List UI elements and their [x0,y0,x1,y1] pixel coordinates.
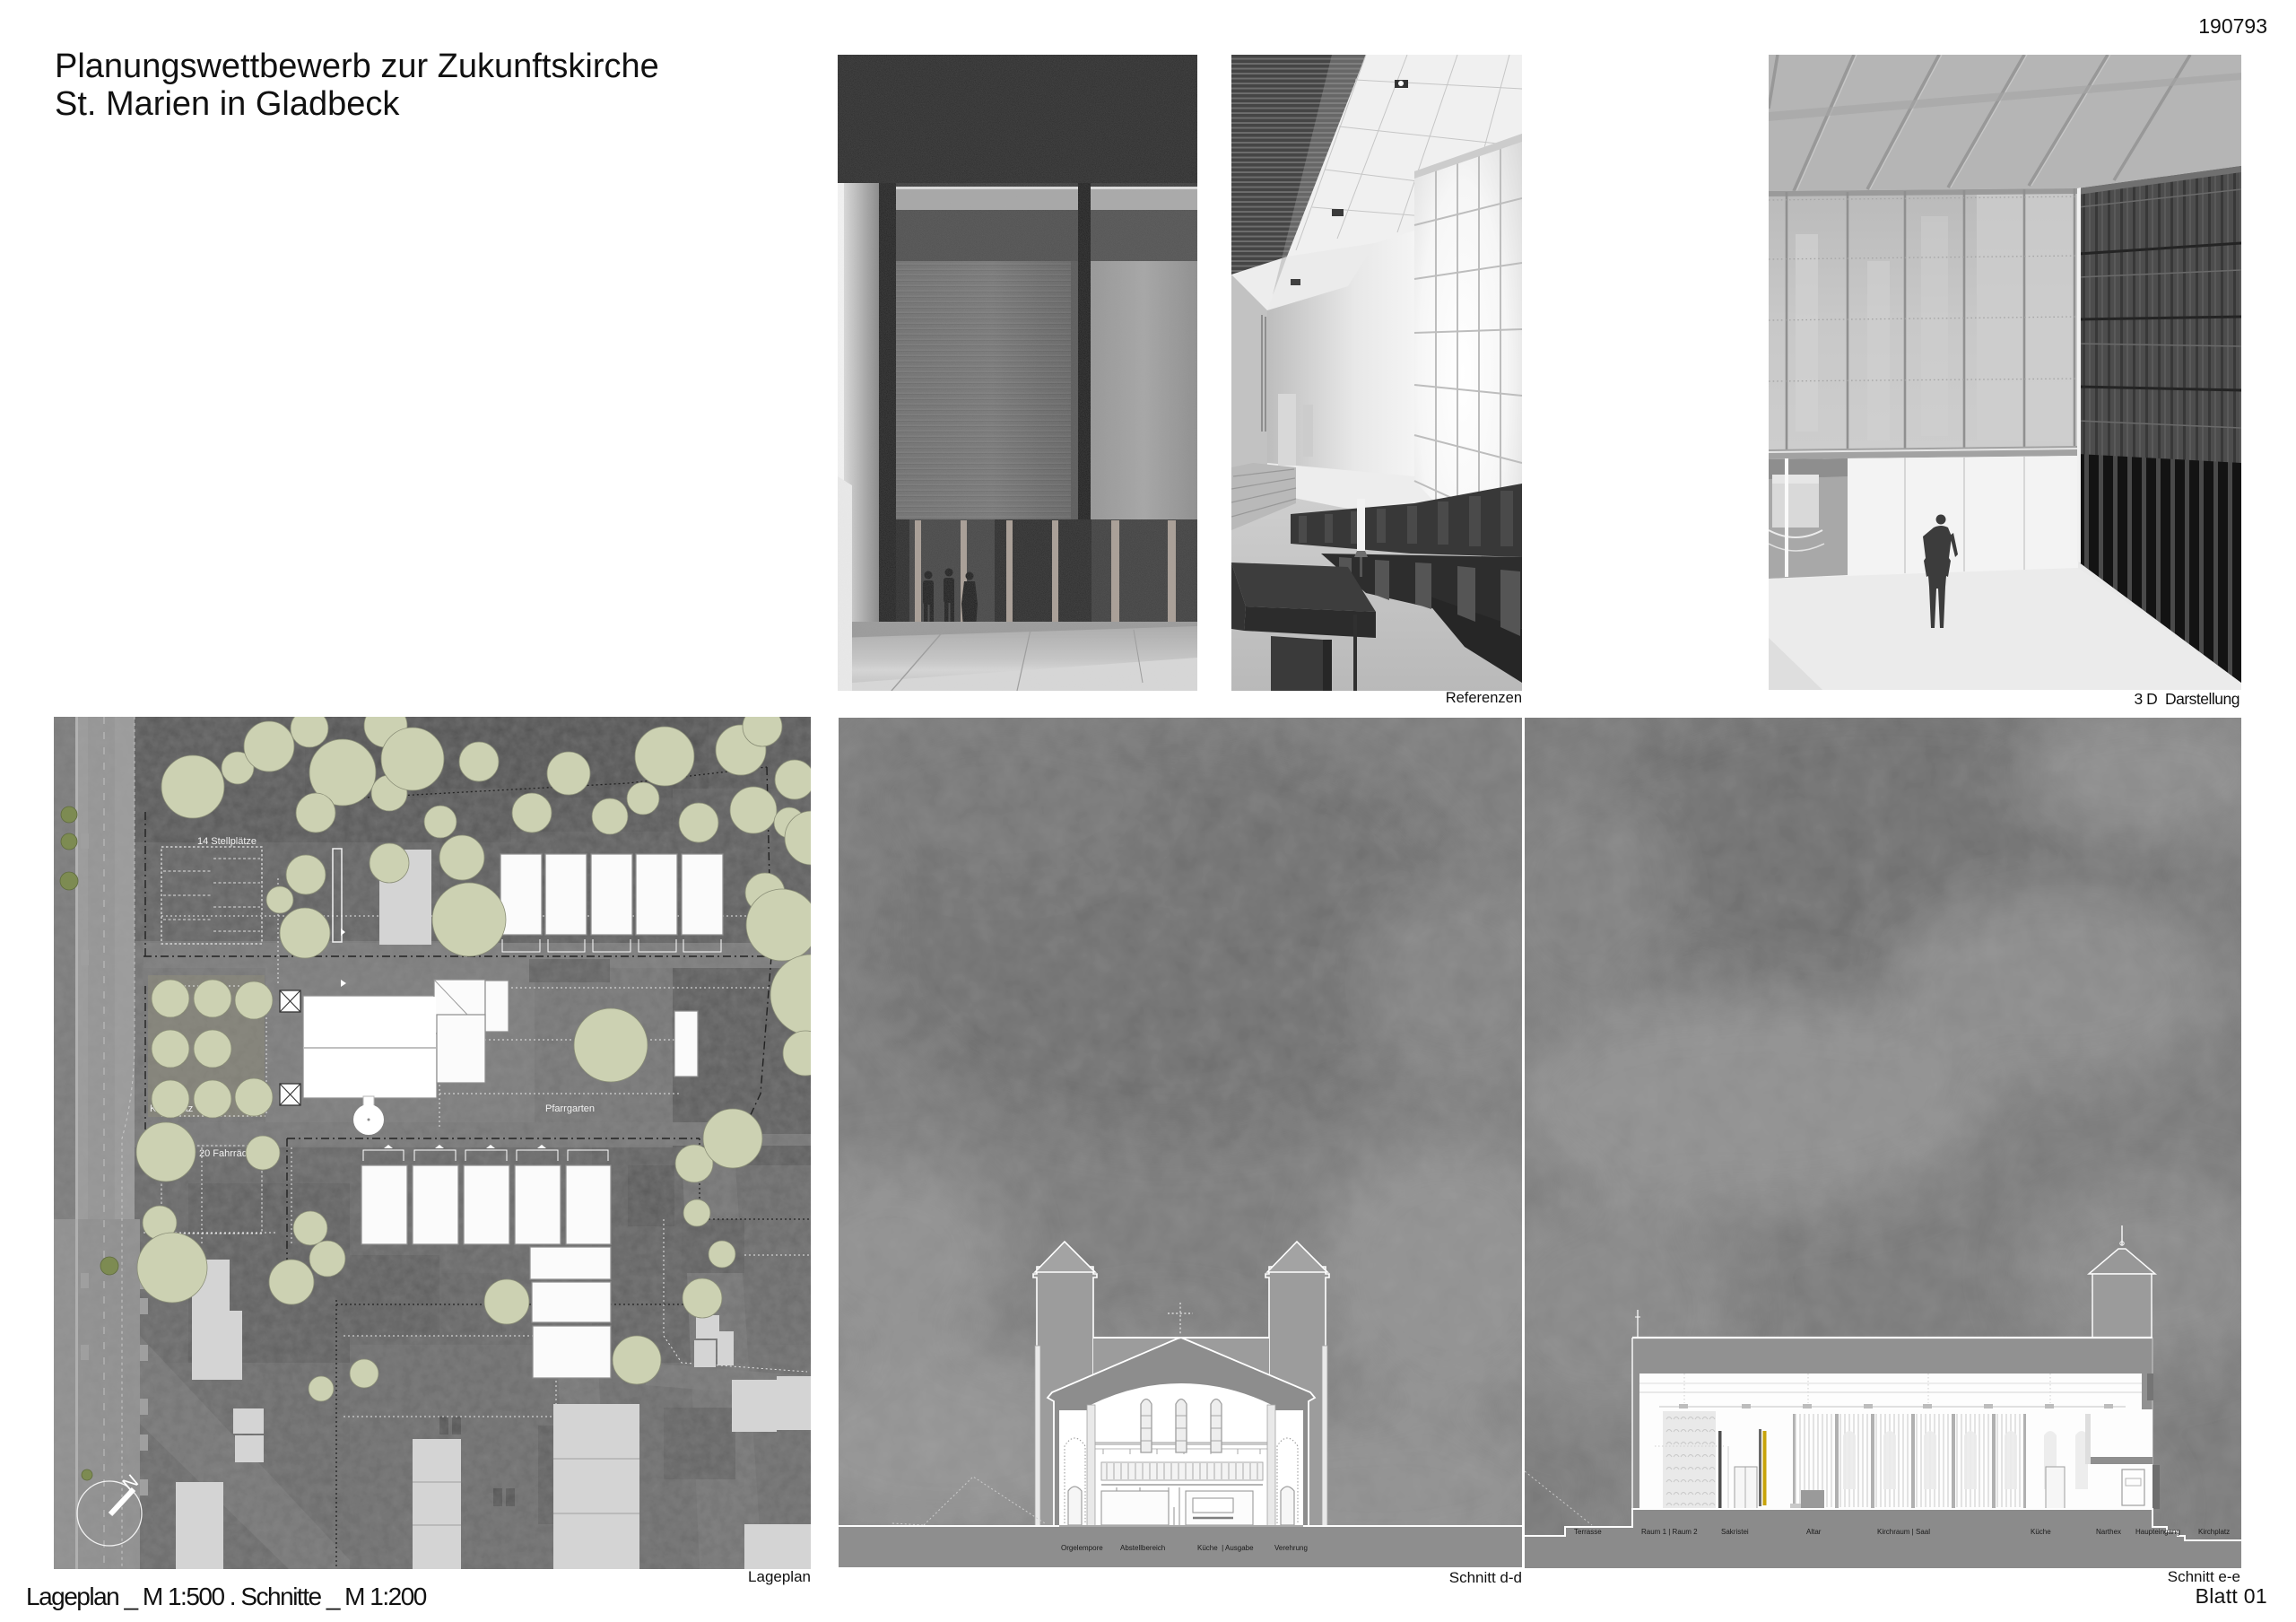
svg-text:Terrasse: Terrasse [1574,1528,1602,1536]
svg-text:Kirchplatz: Kirchplatz [2198,1528,2230,1536]
svg-text:Abstellbereich: Abstellbereich [1120,1544,1165,1552]
svg-text:Orgelempore: Orgelempore [1061,1544,1103,1552]
svg-text:Altar: Altar [1806,1528,1822,1536]
svg-text:Narthex: Narthex [2096,1528,2121,1536]
svg-text:Haupteingang: Haupteingang [2135,1528,2180,1536]
svg-text:Raum 1 | Raum 2: Raum 1 | Raum 2 [1641,1528,1698,1536]
svg-text:Küche | Ausgabe: Küche | Ausgabe [1197,1544,1254,1552]
svg-text:14 Stellplätze: 14 Stellplätze [197,836,257,847]
svg-text:Kirchraum | Saal: Kirchraum | Saal [1877,1528,1930,1536]
svg-text:Küche: Küche [2031,1528,2051,1536]
svg-text:Pfarrgarten: Pfarrgarten [545,1103,595,1114]
svg-text:Verehrung: Verehrung [1274,1544,1308,1552]
svg-text:Sakristei: Sakristei [1721,1528,1749,1536]
